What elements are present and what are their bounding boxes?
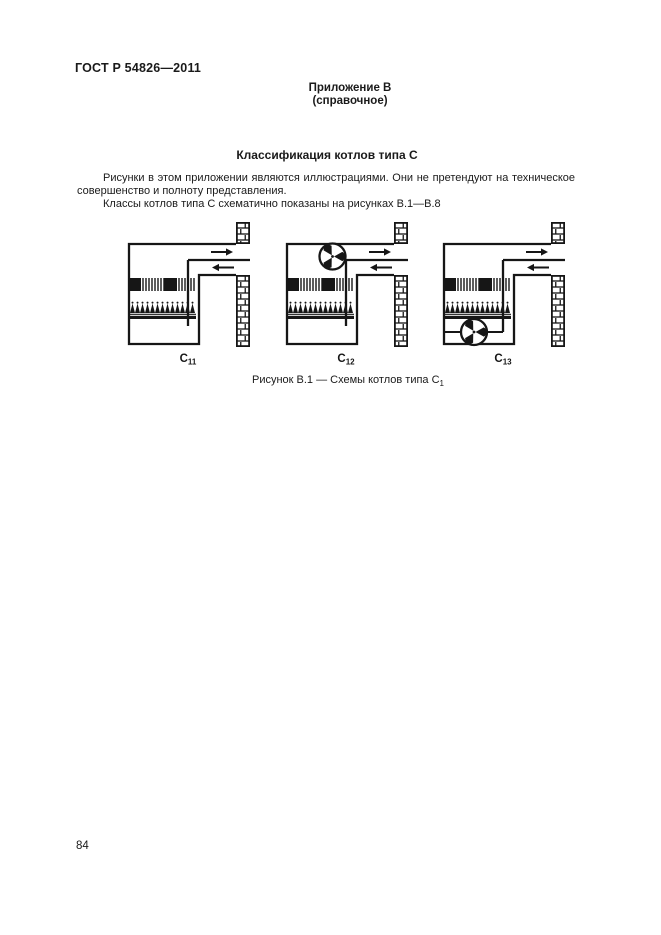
appendix-heading: Приложение В (справочное): [255, 82, 445, 108]
appendix-label: Приложение В: [255, 82, 445, 95]
wall-brick-top: [395, 223, 407, 243]
doc-number: ГОСТ Р 54826—2011: [75, 61, 201, 75]
figure-caption: Рисунок В.1 — Схемы котлов типа С1: [200, 374, 496, 388]
burner-flames: [130, 302, 195, 313]
wall-brick-side: [552, 276, 564, 346]
paragraph-classes: Классы котлов типа С схематично показаны…: [77, 198, 597, 211]
boiler-diagram-с12: С12: [284, 220, 408, 370]
document-page: ГОСТ Р 54826—2011 Приложение В (справочн…: [0, 0, 661, 935]
boiler-diagram-с13: С13: [441, 220, 565, 370]
fan-icon: [320, 243, 346, 269]
wall-brick-side: [395, 276, 407, 346]
appendix-type: (справочное): [255, 95, 445, 108]
heat-exchanger-band: [129, 278, 194, 291]
burner-plate: [287, 314, 354, 319]
burner-flames: [288, 302, 353, 313]
wall-brick-top: [237, 223, 249, 243]
section-title: Классификация котлов типа С: [77, 148, 577, 162]
diagram-label: С12: [337, 353, 355, 367]
burner-flames: [445, 302, 510, 313]
diagram-label: С13: [494, 353, 512, 367]
air-in-arrow-icon: [370, 264, 392, 271]
air-in-arrow-icon: [212, 264, 234, 271]
heat-exchanger-band: [444, 278, 509, 291]
flue-out-arrow-icon: [211, 248, 233, 255]
page-number: 84: [76, 840, 89, 852]
burner-plate: [129, 314, 196, 319]
diagram-label: С11: [180, 353, 197, 367]
figure-caption-text: Рисунок В.1 — Схемы котлов типа С: [252, 374, 440, 386]
flue-out-arrow-icon: [369, 248, 391, 255]
air-in-arrow-icon: [527, 264, 549, 271]
figures-row: С11С12С13: [0, 220, 661, 370]
boiler-diagram-с11: С11: [126, 220, 250, 370]
wall-brick-side: [237, 276, 249, 346]
flue-out-arrow-icon: [526, 248, 548, 255]
paragraph-intro: Рисунки в этом приложении являются иллюс…: [77, 172, 575, 198]
wall-brick-top: [552, 223, 564, 243]
fan-icon: [461, 319, 487, 345]
figure-caption-subscript: 1: [440, 379, 444, 388]
heat-exchanger-band: [287, 278, 352, 291]
